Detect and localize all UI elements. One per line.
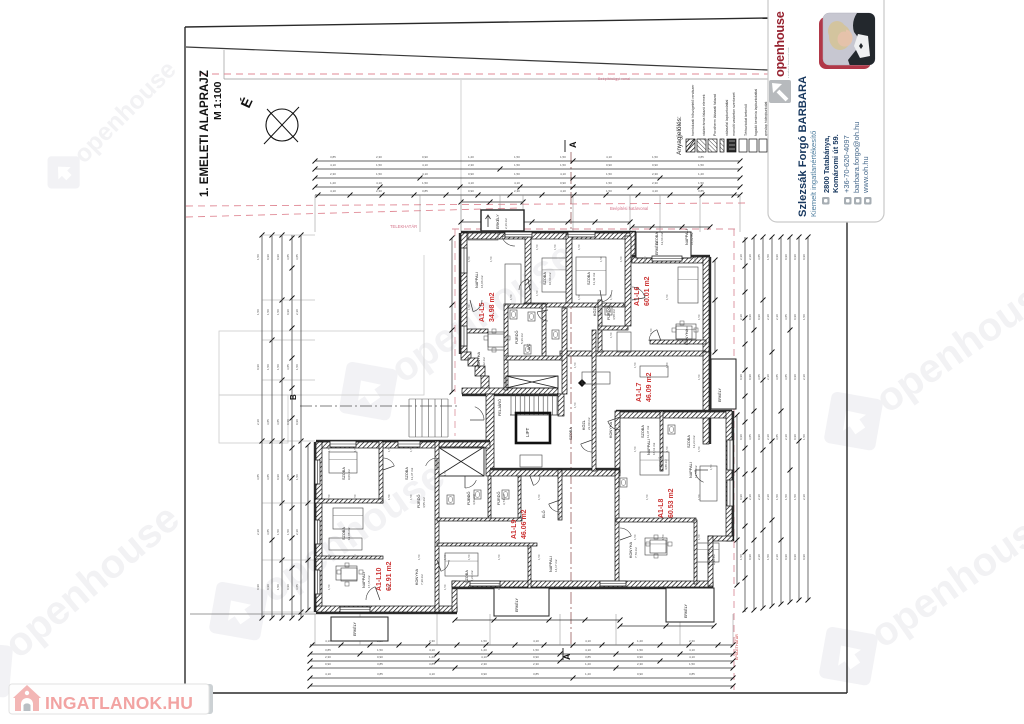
svg-text:1,50: 1,50 bbox=[698, 163, 704, 167]
svg-text:0,90: 0,90 bbox=[276, 474, 280, 480]
svg-text:1,50: 1,50 bbox=[560, 163, 566, 167]
svg-text:2,30: 2,30 bbox=[376, 189, 382, 193]
svg-text:2,30: 2,30 bbox=[784, 434, 788, 440]
svg-text:3,85: 3,85 bbox=[266, 529, 270, 535]
svg-text:homlokzati hőszigetelő rendsze: homlokzati hőszigetelő rendszer bbox=[691, 84, 695, 136]
svg-text:1,50: 1,50 bbox=[256, 309, 260, 315]
svg-text:ERKÉLY: ERKÉLY bbox=[495, 214, 500, 229]
svg-text:1,50: 1,50 bbox=[617, 424, 621, 430]
svg-text:KONYHA: KONYHA bbox=[707, 548, 711, 565]
svg-text:2,30: 2,30 bbox=[429, 639, 435, 643]
svg-text:1,50: 1,50 bbox=[784, 494, 788, 500]
svg-text:0,90: 0,90 bbox=[775, 254, 779, 260]
svg-text:3,85: 3,85 bbox=[775, 434, 779, 440]
svg-text:4,10: 4,10 bbox=[652, 189, 658, 193]
svg-text:2,30: 2,30 bbox=[766, 374, 770, 380]
svg-text:9,06 m2: 9,06 m2 bbox=[347, 469, 351, 480]
svg-text:1,50: 1,50 bbox=[709, 464, 713, 470]
svg-text:60.53 m2: 60.53 m2 bbox=[668, 488, 675, 518]
svg-text:SZOBA: SZOBA bbox=[405, 467, 409, 480]
svg-text:ERKÉLY: ERKÉLY bbox=[352, 621, 357, 636]
svg-text:1,20: 1,20 bbox=[585, 662, 591, 666]
svg-text:1,50: 1,50 bbox=[637, 648, 643, 652]
svg-text:M 1:100: M 1:100 bbox=[212, 81, 224, 120]
svg-text:0,90: 0,90 bbox=[266, 254, 270, 260]
svg-text:1,50: 1,50 bbox=[766, 254, 770, 260]
svg-text:0,90: 0,90 bbox=[793, 254, 797, 260]
svg-text:34.98 m2: 34.98 m2 bbox=[489, 292, 496, 322]
svg-text:1,50: 1,50 bbox=[514, 155, 520, 159]
svg-text:1,50: 1,50 bbox=[661, 534, 665, 540]
svg-text:1,50: 1,50 bbox=[573, 402, 577, 408]
svg-text:2,30: 2,30 bbox=[295, 309, 299, 315]
svg-text:Anyagjelölés:: Anyagjelölés: bbox=[676, 116, 683, 155]
svg-text:ERKÉLY: ERKÉLY bbox=[717, 387, 722, 402]
svg-text:1,50: 1,50 bbox=[327, 554, 331, 560]
svg-text:1,50: 1,50 bbox=[802, 314, 806, 320]
svg-text:1,50: 1,50 bbox=[327, 446, 331, 452]
svg-text:4,10: 4,10 bbox=[330, 163, 336, 167]
svg-text:1,50: 1,50 bbox=[353, 494, 357, 500]
svg-text:1,50: 1,50 bbox=[497, 554, 501, 560]
svg-text:A1-L10: A1-L10 bbox=[376, 568, 383, 591]
svg-text:KÖZL: KÖZL bbox=[593, 306, 597, 316]
svg-text:1,50: 1,50 bbox=[633, 534, 637, 540]
svg-text:0,90: 0,90 bbox=[757, 314, 761, 320]
svg-text:ERKÉLY: ERKÉLY bbox=[683, 603, 688, 618]
svg-text:4,10: 4,10 bbox=[689, 648, 695, 652]
svg-text:SZOBA: SZOBA bbox=[465, 570, 469, 583]
svg-text:1,50: 1,50 bbox=[698, 181, 704, 185]
svg-text:0,90: 0,90 bbox=[468, 172, 474, 176]
svg-text:0,90: 0,90 bbox=[748, 554, 752, 560]
svg-text:2,30: 2,30 bbox=[775, 314, 779, 320]
svg-text:openhouse: openhouse bbox=[772, 11, 787, 77]
svg-text:0,90: 0,90 bbox=[784, 254, 788, 260]
svg-text:1,50: 1,50 bbox=[697, 534, 701, 540]
svg-text:2,30: 2,30 bbox=[330, 172, 336, 176]
svg-text:3,85: 3,85 bbox=[698, 155, 704, 159]
svg-text:1,20: 1,20 bbox=[330, 181, 336, 185]
svg-text:FELJÁRÓ: FELJÁRÓ bbox=[497, 399, 502, 416]
svg-text:4,10: 4,10 bbox=[468, 181, 474, 185]
svg-text:1,20: 1,20 bbox=[468, 155, 474, 159]
svg-text:1,50: 1,50 bbox=[443, 554, 447, 560]
svg-text:1,50: 1,50 bbox=[286, 529, 290, 535]
svg-text:3,85: 3,85 bbox=[775, 374, 779, 380]
svg-text:3,85: 3,85 bbox=[266, 474, 270, 480]
svg-text:3,85: 3,85 bbox=[784, 374, 788, 380]
svg-text:3,85: 3,85 bbox=[295, 254, 299, 260]
svg-text:3,85: 3,85 bbox=[286, 474, 290, 480]
svg-text:fogadó kerámia lapburkolattal: fogadó kerámia lapburkolattal bbox=[754, 89, 758, 136]
svg-text:1,50: 1,50 bbox=[256, 254, 260, 260]
svg-text:1,50: 1,50 bbox=[266, 309, 270, 315]
svg-text:4,88 m2: 4,88 m2 bbox=[664, 459, 668, 470]
svg-text:3,85: 3,85 bbox=[330, 155, 336, 159]
svg-text:1,50: 1,50 bbox=[497, 584, 501, 590]
svg-text:0,90: 0,90 bbox=[637, 672, 643, 676]
svg-text:2,30: 2,30 bbox=[481, 662, 487, 666]
svg-text:4,10: 4,10 bbox=[429, 648, 435, 652]
svg-text:3,74 m2: 3,74 m2 bbox=[502, 494, 506, 505]
svg-text:NAPPALI: NAPPALI bbox=[549, 556, 553, 572]
svg-text:1,50: 1,50 bbox=[443, 584, 447, 590]
svg-text:Szlezsák Forgó BARBARA: Szlezsák Forgó BARBARA bbox=[797, 76, 809, 217]
svg-text:4,10: 4,10 bbox=[689, 655, 695, 659]
svg-text:1,50: 1,50 bbox=[353, 446, 357, 452]
svg-text:1,50: 1,50 bbox=[295, 474, 299, 480]
svg-text:1,50: 1,50 bbox=[353, 554, 357, 560]
svg-text:4,10: 4,10 bbox=[560, 172, 566, 176]
svg-text:60.01 m2: 60.01 m2 bbox=[644, 276, 651, 306]
svg-text:1,50: 1,50 bbox=[617, 494, 621, 500]
svg-text:0,90: 0,90 bbox=[266, 584, 270, 590]
svg-text:3,85: 3,85 bbox=[276, 419, 280, 425]
svg-text:vázkerámia falazó elemek: vázkerámia falazó elemek bbox=[702, 94, 706, 136]
svg-text:1,50: 1,50 bbox=[643, 256, 647, 262]
svg-text:SZOBA: SZOBA bbox=[687, 435, 691, 448]
svg-text:7,79 m2: 7,79 m2 bbox=[634, 547, 638, 558]
svg-text:1,20: 1,20 bbox=[429, 655, 435, 659]
svg-text:1,50: 1,50 bbox=[577, 294, 581, 300]
svg-text:NAPPALI: NAPPALI bbox=[685, 229, 689, 245]
svg-text:3,85: 3,85 bbox=[295, 584, 299, 590]
svg-text:2,30: 2,30 bbox=[766, 434, 770, 440]
svg-text:3,85: 3,85 bbox=[748, 434, 752, 440]
svg-text:11,37 m2: 11,37 m2 bbox=[646, 425, 650, 438]
svg-text:3,85: 3,85 bbox=[286, 254, 290, 260]
svg-text:0,90: 0,90 bbox=[377, 655, 383, 659]
svg-text:3,85: 3,85 bbox=[266, 419, 270, 425]
svg-text:1,50: 1,50 bbox=[665, 446, 669, 452]
svg-text:1,50: 1,50 bbox=[443, 470, 447, 476]
svg-text:A1-L9: A1-L9 bbox=[511, 519, 518, 539]
svg-text:2,30: 2,30 bbox=[739, 254, 743, 260]
svg-text:3,85: 3,85 bbox=[784, 314, 788, 320]
svg-text:KONYHA: KONYHA bbox=[629, 541, 633, 558]
svg-text:2,30: 2,30 bbox=[748, 494, 752, 500]
svg-text:1,20: 1,20 bbox=[698, 172, 704, 176]
svg-text:3,85: 3,85 bbox=[422, 189, 428, 193]
svg-text:1,50: 1,50 bbox=[609, 332, 613, 338]
svg-text:1,50: 1,50 bbox=[481, 639, 487, 643]
svg-text:1,50: 1,50 bbox=[652, 155, 658, 159]
svg-text:1,20: 1,20 bbox=[585, 672, 591, 676]
svg-text:0,90: 0,90 bbox=[652, 163, 658, 167]
svg-text:16,02 m2: 16,02 m2 bbox=[690, 232, 694, 245]
svg-text:16,58 m2: 16,58 m2 bbox=[694, 465, 698, 478]
svg-text:1,50: 1,50 bbox=[537, 554, 541, 560]
svg-text:2,30: 2,30 bbox=[689, 639, 695, 643]
svg-text:1,50: 1,50 bbox=[467, 304, 471, 310]
svg-text:4,10: 4,10 bbox=[606, 155, 612, 159]
svg-text:1,20: 1,20 bbox=[481, 648, 487, 652]
svg-text:0,90: 0,90 bbox=[739, 374, 743, 380]
svg-text:1,50: 1,50 bbox=[467, 554, 471, 560]
svg-text:9,12 m2: 9,12 m2 bbox=[482, 357, 486, 368]
svg-text:1,50: 1,50 bbox=[409, 446, 413, 452]
svg-text:2,30: 2,30 bbox=[775, 554, 779, 560]
svg-text:1,50: 1,50 bbox=[553, 244, 557, 250]
svg-text:SZOBA: SZOBA bbox=[342, 467, 346, 480]
svg-text:0,90: 0,90 bbox=[757, 434, 761, 440]
svg-text:1,50: 1,50 bbox=[276, 529, 280, 535]
svg-text:Komáromi út 59.: Komáromi út 59. bbox=[831, 134, 840, 193]
svg-text:2,30: 2,30 bbox=[376, 155, 382, 159]
svg-text:0,90: 0,90 bbox=[793, 374, 797, 380]
svg-text:www.oh.hu: www.oh.hu bbox=[861, 156, 870, 194]
svg-text:12,64 m2: 12,64 m2 bbox=[660, 232, 664, 245]
svg-text:A1-L5: A1-L5 bbox=[479, 302, 486, 322]
svg-text:4,10: 4,10 bbox=[533, 639, 539, 643]
svg-text:0,90: 0,90 bbox=[784, 554, 788, 560]
svg-text:1,50: 1,50 bbox=[619, 256, 623, 262]
svg-text:KÖZL: KÖZL bbox=[582, 420, 586, 430]
svg-text:1,50: 1,50 bbox=[537, 494, 541, 500]
svg-text:1,50: 1,50 bbox=[775, 494, 779, 500]
svg-text:1,50: 1,50 bbox=[593, 382, 597, 388]
svg-text:0,90: 0,90 bbox=[793, 554, 797, 560]
svg-text:2800 Tatabánya,: 2800 Tatabánya, bbox=[822, 136, 831, 193]
svg-text:Kiemelt ingatlanértékesítő: Kiemelt ingatlanértékesítő bbox=[809, 131, 818, 217]
svg-text:3,85: 3,85 bbox=[757, 374, 761, 380]
svg-text:3,85: 3,85 bbox=[429, 662, 435, 666]
svg-text:3,85: 3,85 bbox=[698, 189, 704, 193]
svg-text:0,90: 0,90 bbox=[802, 254, 806, 260]
svg-text:2,30: 2,30 bbox=[652, 172, 658, 176]
svg-text:2,30: 2,30 bbox=[295, 529, 299, 535]
svg-text:11,42 m2: 11,42 m2 bbox=[592, 272, 596, 285]
svg-text:SZOBA: SZOBA bbox=[543, 272, 547, 285]
svg-text:2,30: 2,30 bbox=[514, 189, 520, 193]
svg-text:1,50: 1,50 bbox=[327, 494, 331, 500]
svg-text:1,50: 1,50 bbox=[599, 256, 603, 262]
svg-text:3,85: 3,85 bbox=[585, 655, 591, 659]
svg-text:FÜRDŐ: FÜRDŐ bbox=[496, 491, 501, 505]
svg-text:NAPPALI: NAPPALI bbox=[647, 439, 651, 455]
svg-text:1,50: 1,50 bbox=[276, 584, 280, 590]
svg-text:1,50: 1,50 bbox=[514, 163, 520, 167]
svg-text:0,90: 0,90 bbox=[422, 155, 428, 159]
svg-text:1,50: 1,50 bbox=[802, 434, 806, 440]
svg-text:23,09 m2: 23,09 m2 bbox=[587, 417, 591, 430]
svg-text:KONYHA: KONYHA bbox=[477, 351, 481, 368]
svg-text:0,90: 0,90 bbox=[256, 584, 260, 590]
svg-text:ELŐ: ELŐ bbox=[541, 510, 546, 518]
svg-text:9,90 m2: 9,90 m2 bbox=[712, 554, 716, 565]
svg-text:12,23 m2: 12,23 m2 bbox=[692, 435, 696, 448]
svg-text:0,90: 0,90 bbox=[286, 584, 290, 590]
svg-text:2,30: 2,30 bbox=[802, 494, 806, 500]
svg-text:A1-L8: A1-L8 bbox=[658, 498, 665, 518]
svg-text:1,50: 1,50 bbox=[645, 494, 649, 500]
svg-text:NAPPALI: NAPPALI bbox=[689, 462, 693, 478]
svg-text:1,50: 1,50 bbox=[509, 294, 513, 300]
svg-text:3,85: 3,85 bbox=[256, 474, 260, 480]
svg-text:0,90: 0,90 bbox=[481, 672, 487, 676]
svg-text:1,50: 1,50 bbox=[606, 181, 612, 185]
svg-text:0,90: 0,90 bbox=[606, 163, 612, 167]
svg-text:2,30: 2,30 bbox=[468, 163, 474, 167]
svg-text:1,50: 1,50 bbox=[665, 362, 669, 368]
svg-text:SZOBA: SZOBA bbox=[587, 272, 591, 285]
svg-text:4,10: 4,10 bbox=[514, 181, 520, 185]
svg-text:4,10: 4,10 bbox=[585, 648, 591, 652]
svg-text:2,30: 2,30 bbox=[748, 254, 752, 260]
svg-text:+36-70-620-4097: +36-70-620-4097 bbox=[842, 135, 851, 193]
svg-text:4,10: 4,10 bbox=[585, 639, 591, 643]
svg-text:LIFT: LIFT bbox=[525, 427, 530, 437]
svg-text:0,90: 0,90 bbox=[468, 189, 474, 193]
svg-text:1,50: 1,50 bbox=[387, 584, 391, 590]
svg-text:1,50: 1,50 bbox=[467, 256, 471, 262]
svg-text:0,90: 0,90 bbox=[739, 494, 743, 500]
svg-text:1,50: 1,50 bbox=[693, 256, 697, 262]
svg-text:1,50: 1,50 bbox=[376, 172, 382, 176]
svg-text:2,30: 2,30 bbox=[757, 494, 761, 500]
svg-text:1,50: 1,50 bbox=[606, 172, 612, 176]
svg-text:0,90: 0,90 bbox=[793, 314, 797, 320]
svg-text:3,85: 3,85 bbox=[286, 364, 290, 370]
svg-text:4,10: 4,10 bbox=[422, 172, 428, 176]
svg-text:0,90: 0,90 bbox=[276, 254, 280, 260]
svg-text:4,10: 4,10 bbox=[422, 163, 428, 167]
svg-text:1,50: 1,50 bbox=[327, 584, 331, 590]
svg-text:2,30: 2,30 bbox=[766, 314, 770, 320]
svg-text:1,50: 1,50 bbox=[689, 662, 695, 666]
svg-text:3,85: 3,85 bbox=[377, 672, 383, 676]
svg-text:1,50: 1,50 bbox=[535, 244, 539, 250]
svg-text:0,90: 0,90 bbox=[802, 554, 806, 560]
svg-text:SZOBA: SZOBA bbox=[569, 427, 573, 440]
svg-text:1,50: 1,50 bbox=[643, 294, 647, 300]
svg-text:TELEKHATÁR: TELEKHATÁR bbox=[390, 224, 417, 229]
svg-text:0,90: 0,90 bbox=[286, 309, 290, 315]
svg-text:2,30: 2,30 bbox=[757, 554, 761, 560]
svg-text:4,10: 4,10 bbox=[376, 181, 382, 185]
svg-text:1. EMELETI ALAPRAJZ: 1. EMELETI ALAPRAJZ bbox=[199, 70, 211, 197]
svg-text:1,50: 1,50 bbox=[665, 294, 669, 300]
svg-text:SZOBA: SZOBA bbox=[641, 425, 645, 438]
svg-text:1,50: 1,50 bbox=[422, 181, 428, 185]
svg-text:1,50: 1,50 bbox=[377, 648, 383, 652]
svg-text:2,30: 2,30 bbox=[802, 374, 806, 380]
svg-text:0,90: 0,90 bbox=[295, 419, 299, 425]
svg-text:1,50: 1,50 bbox=[609, 294, 613, 300]
svg-text:0,90: 0,90 bbox=[748, 374, 752, 380]
svg-text:1,50: 1,50 bbox=[266, 364, 270, 370]
svg-text:Beépítési határvonal: Beépítési határvonal bbox=[610, 206, 648, 211]
svg-text:4,10: 4,10 bbox=[325, 672, 331, 676]
svg-text:4,55 m2: 4,55 m2 bbox=[422, 497, 426, 508]
svg-text:0,90: 0,90 bbox=[793, 434, 797, 440]
svg-text:2,30: 2,30 bbox=[256, 529, 260, 535]
svg-text:1,50: 1,50 bbox=[697, 446, 701, 452]
svg-text:Térburkolat betonkő: Térburkolat betonkő bbox=[744, 104, 748, 136]
svg-text:Porotherm lábazati falazat: Porotherm lábazati falazat bbox=[713, 94, 717, 136]
svg-text:FÜRDŐ: FÜRDŐ bbox=[416, 494, 421, 508]
svg-text:5,36 m2: 5,36 m2 bbox=[520, 333, 524, 344]
svg-text:2,30: 2,30 bbox=[325, 655, 331, 659]
svg-text:2,30: 2,30 bbox=[533, 662, 539, 666]
svg-text:1,50: 1,50 bbox=[697, 494, 701, 500]
svg-text:14,17 m2: 14,17 m2 bbox=[554, 559, 558, 572]
svg-text:1,50: 1,50 bbox=[739, 554, 743, 560]
svg-text:1,50: 1,50 bbox=[467, 494, 471, 500]
svg-text:A: A bbox=[568, 141, 578, 148]
svg-text:barbara.forgo@oh.hu: barbara.forgo@oh.hu bbox=[852, 122, 861, 193]
svg-text:INGATLANOK.HU: INGATLANOK.HU bbox=[45, 693, 193, 713]
svg-text:1,50: 1,50 bbox=[685, 326, 689, 332]
svg-text:1,50: 1,50 bbox=[633, 362, 637, 368]
svg-text:1,50: 1,50 bbox=[606, 189, 612, 193]
svg-text:16,11 m2: 16,11 m2 bbox=[652, 442, 656, 455]
svg-text:4,10: 4,10 bbox=[325, 639, 331, 643]
svg-text:3,85: 3,85 bbox=[689, 672, 695, 676]
svg-text:1,50: 1,50 bbox=[387, 446, 391, 452]
svg-text:1,50: 1,50 bbox=[276, 309, 280, 315]
svg-text:1,20: 1,20 bbox=[637, 639, 643, 643]
svg-text:3,85: 3,85 bbox=[533, 672, 539, 676]
svg-text:2,30: 2,30 bbox=[256, 419, 260, 425]
svg-text:1,50: 1,50 bbox=[560, 155, 566, 159]
svg-text:1,50: 1,50 bbox=[387, 494, 391, 500]
svg-text:4,10: 4,10 bbox=[429, 672, 435, 676]
svg-text:0,90: 0,90 bbox=[637, 655, 643, 659]
svg-text:1,50: 1,50 bbox=[276, 364, 280, 370]
svg-text:7,30 m2: 7,30 m2 bbox=[420, 574, 424, 585]
svg-text:11,37 m2: 11,37 m2 bbox=[410, 467, 414, 480]
svg-text:SZOBA: SZOBA bbox=[655, 232, 659, 245]
svg-text:A1-L7: A1-L7 bbox=[636, 382, 643, 402]
svg-text:0,90: 0,90 bbox=[533, 655, 539, 659]
svg-text:1,50: 1,50 bbox=[793, 494, 797, 500]
svg-text:2,30: 2,30 bbox=[739, 314, 743, 320]
svg-text:1,50: 1,50 bbox=[557, 514, 561, 520]
svg-text:0,90: 0,90 bbox=[286, 419, 290, 425]
svg-text:ERKÉLY: ERKÉLY bbox=[514, 597, 519, 612]
svg-text:0,90: 0,90 bbox=[325, 662, 331, 666]
svg-text:monolit vasbeton szerkezet: monolit vasbeton szerkezet bbox=[732, 92, 736, 136]
svg-text:2,30: 2,30 bbox=[652, 181, 658, 185]
svg-text:1,50: 1,50 bbox=[514, 172, 520, 176]
svg-text:ÉPÜLETHATÁR: ÉPÜLETHATÁR bbox=[734, 634, 739, 660]
svg-text:2,16 m2: 2,16 m2 bbox=[504, 218, 508, 229]
svg-text:1,50: 1,50 bbox=[697, 314, 701, 320]
svg-text:1,50: 1,50 bbox=[409, 494, 413, 500]
svg-text:FÜRDŐ: FÜRDŐ bbox=[658, 456, 663, 470]
svg-text:1,50: 1,50 bbox=[633, 446, 637, 452]
svg-text:17,15 m2: 17,15 m2 bbox=[367, 575, 371, 588]
svg-text:4,58 m2: 4,58 m2 bbox=[612, 309, 616, 320]
svg-text:10,64 m2: 10,64 m2 bbox=[548, 272, 552, 285]
svg-text:FÜRDŐ: FÜRDŐ bbox=[514, 330, 519, 344]
svg-text:3,85: 3,85 bbox=[325, 648, 331, 652]
svg-text:1,50: 1,50 bbox=[533, 648, 539, 652]
svg-text:0,90: 0,90 bbox=[256, 364, 260, 370]
svg-text:0,90: 0,90 bbox=[560, 181, 566, 185]
svg-text:4,10: 4,10 bbox=[330, 189, 336, 193]
svg-text:B: B bbox=[289, 394, 298, 400]
svg-text:3,85: 3,85 bbox=[377, 662, 383, 666]
svg-text:46.06 m2: 46.06 m2 bbox=[521, 509, 528, 539]
svg-text:2,30: 2,30 bbox=[637, 662, 643, 666]
svg-text:3,85: 3,85 bbox=[757, 254, 761, 260]
svg-text:0,90: 0,90 bbox=[739, 434, 743, 440]
svg-text:2,30: 2,30 bbox=[766, 494, 770, 500]
svg-text:NAPPALI: NAPPALI bbox=[475, 272, 479, 288]
